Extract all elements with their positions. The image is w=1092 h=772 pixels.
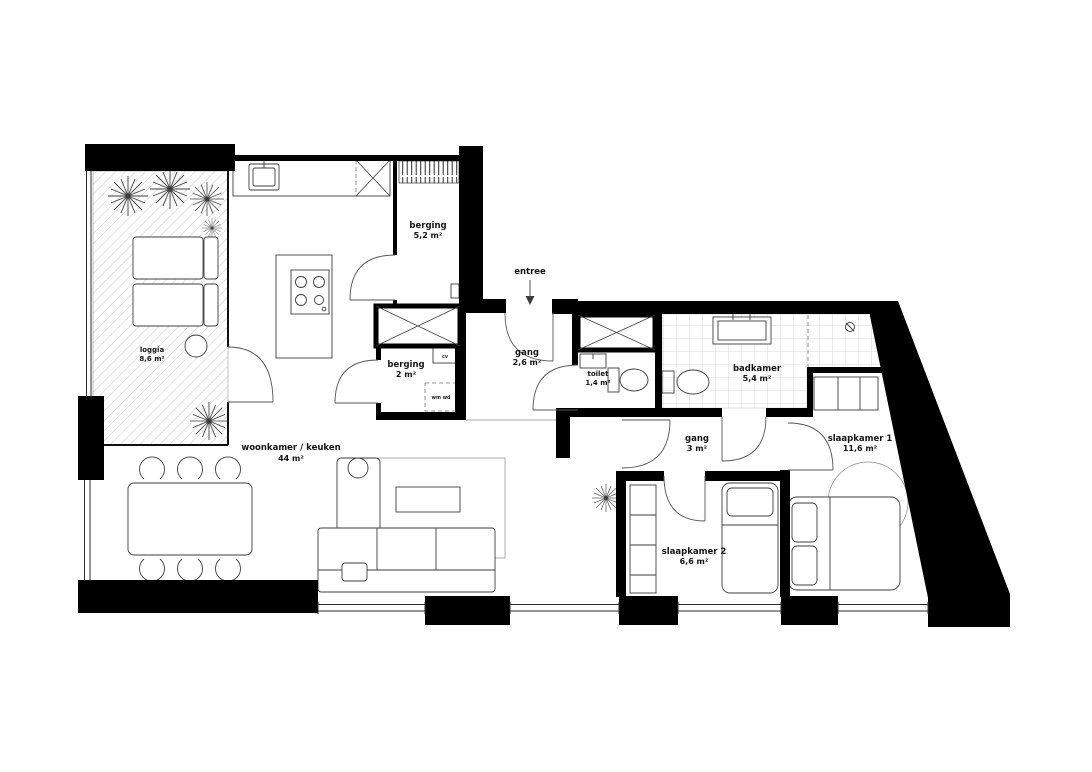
room-area-berging-klein: 2 m² [396, 370, 417, 379]
dining-chair [178, 559, 203, 581]
room-label-loggia: loggia [140, 346, 165, 354]
floor-plan-canvas: loggia 8,6 m² berging 5,2 m² entree gang… [0, 0, 1092, 772]
entree-arrow-icon [526, 280, 535, 305]
double-bed [788, 497, 900, 590]
room-label-gang: gang [685, 434, 709, 444]
wardrobe [814, 377, 878, 410]
door-badkamer [722, 417, 766, 461]
wardrobe-hatch-strip [399, 161, 459, 183]
room-area-woonkamer: 44 m² [278, 454, 304, 463]
window [85, 480, 91, 580]
bedroom2-furniture [630, 483, 778, 593]
lounge-chair-cushion [204, 284, 218, 326]
plant-icon [190, 182, 224, 216]
room-label-berging-groot: berging [409, 221, 446, 231]
kitchen-furniture [233, 160, 390, 358]
room-area-badkamer: 5,4 m² [743, 374, 772, 383]
washer-dryer-label: wm wd [432, 395, 452, 401]
exterior-wall [85, 144, 235, 171]
dining-table [128, 483, 252, 555]
dining-chair [216, 559, 241, 581]
door-slaapkamer-1 [788, 423, 833, 470]
lounge-chair [133, 284, 203, 326]
interior-wall [780, 470, 790, 597]
loggia-table [185, 335, 207, 357]
sofa-set [318, 458, 505, 592]
interior-wall [556, 408, 662, 417]
door-slaapkamer-2 [664, 476, 705, 521]
interior-wall [616, 473, 626, 597]
radiator-icon [451, 284, 459, 298]
exterior-wall [461, 299, 506, 313]
window [318, 602, 425, 614]
interior-wall [766, 408, 813, 417]
sofa [318, 528, 495, 592]
plant-icon [592, 484, 620, 512]
window [510, 602, 619, 614]
door-toilet [533, 365, 578, 410]
interior-wall [658, 408, 722, 417]
room-area-slaapkamer-2: 6,6 m² [680, 557, 709, 566]
room-label-slaapkamer-1: slaapkamer 1 [828, 434, 893, 444]
room-label-toilet: toilet [587, 370, 609, 378]
lamp-icon [348, 458, 368, 478]
room-area-gang-entree: 2,6 m² [513, 358, 542, 367]
door-berging-groot [350, 255, 395, 300]
exterior-wall [781, 596, 838, 625]
exterior-wall [552, 299, 578, 314]
door-berging-klein [335, 360, 378, 403]
interior-wall [376, 412, 466, 420]
exterior-wall [459, 146, 483, 306]
entree-label: entree [514, 267, 546, 277]
room-area-berging-groot: 5,2 m² [414, 231, 443, 240]
room-label-berging-klein: berging [387, 360, 424, 370]
interior-wall [807, 367, 813, 417]
dining-chair [216, 457, 241, 479]
plant-icon [150, 169, 190, 209]
door-gang [622, 420, 670, 468]
closet [630, 485, 656, 593]
kitchen-counter [233, 160, 390, 196]
dining-set [128, 457, 252, 581]
toilet-icon [620, 369, 648, 391]
exterior-wall [230, 155, 461, 161]
room-area-toilet: 1,4 m² [585, 379, 610, 387]
exterior-wall [425, 596, 510, 625]
toilet-icon [677, 370, 709, 394]
window [678, 602, 781, 614]
dining-chair [140, 457, 165, 479]
shafts [376, 306, 655, 350]
room-area-loggia: 8,6 m² [139, 355, 164, 363]
room-label-woonkamer: woonkamer / keuken [241, 443, 340, 453]
window [838, 602, 928, 614]
plant-icon [202, 218, 222, 238]
room-area-slaapkamer-1: 11,6 m² [843, 444, 878, 453]
lounge-chair [133, 237, 203, 279]
plant-icon [108, 176, 148, 216]
room-label-gang-entree: gang [515, 348, 539, 358]
single-bed [722, 483, 778, 593]
interior-wall [393, 159, 397, 255]
exterior-wall [619, 596, 678, 625]
lounge-chair-cushion [204, 237, 218, 279]
exterior-wall [78, 396, 104, 480]
door-loggia [228, 347, 273, 402]
interior-wall [810, 367, 882, 373]
room-area-gang: 3 m² [687, 444, 708, 453]
plant-icon [190, 402, 228, 440]
kitchen-island [276, 255, 332, 358]
room-label-slaapkamer-2: slaapkamer 2 [662, 547, 727, 557]
dining-chair [140, 559, 165, 581]
room-label-badkamer: badkamer [733, 364, 782, 374]
cv-label: cv [442, 355, 449, 360]
side-table [342, 563, 367, 581]
dining-chair [178, 457, 203, 479]
window [87, 171, 92, 400]
exterior-wall [78, 580, 318, 613]
tv-console [396, 487, 460, 512]
interior-wall [705, 471, 788, 481]
interior-wall [556, 408, 570, 458]
exterior-wall [578, 301, 873, 314]
exterior-wall [928, 596, 1008, 627]
